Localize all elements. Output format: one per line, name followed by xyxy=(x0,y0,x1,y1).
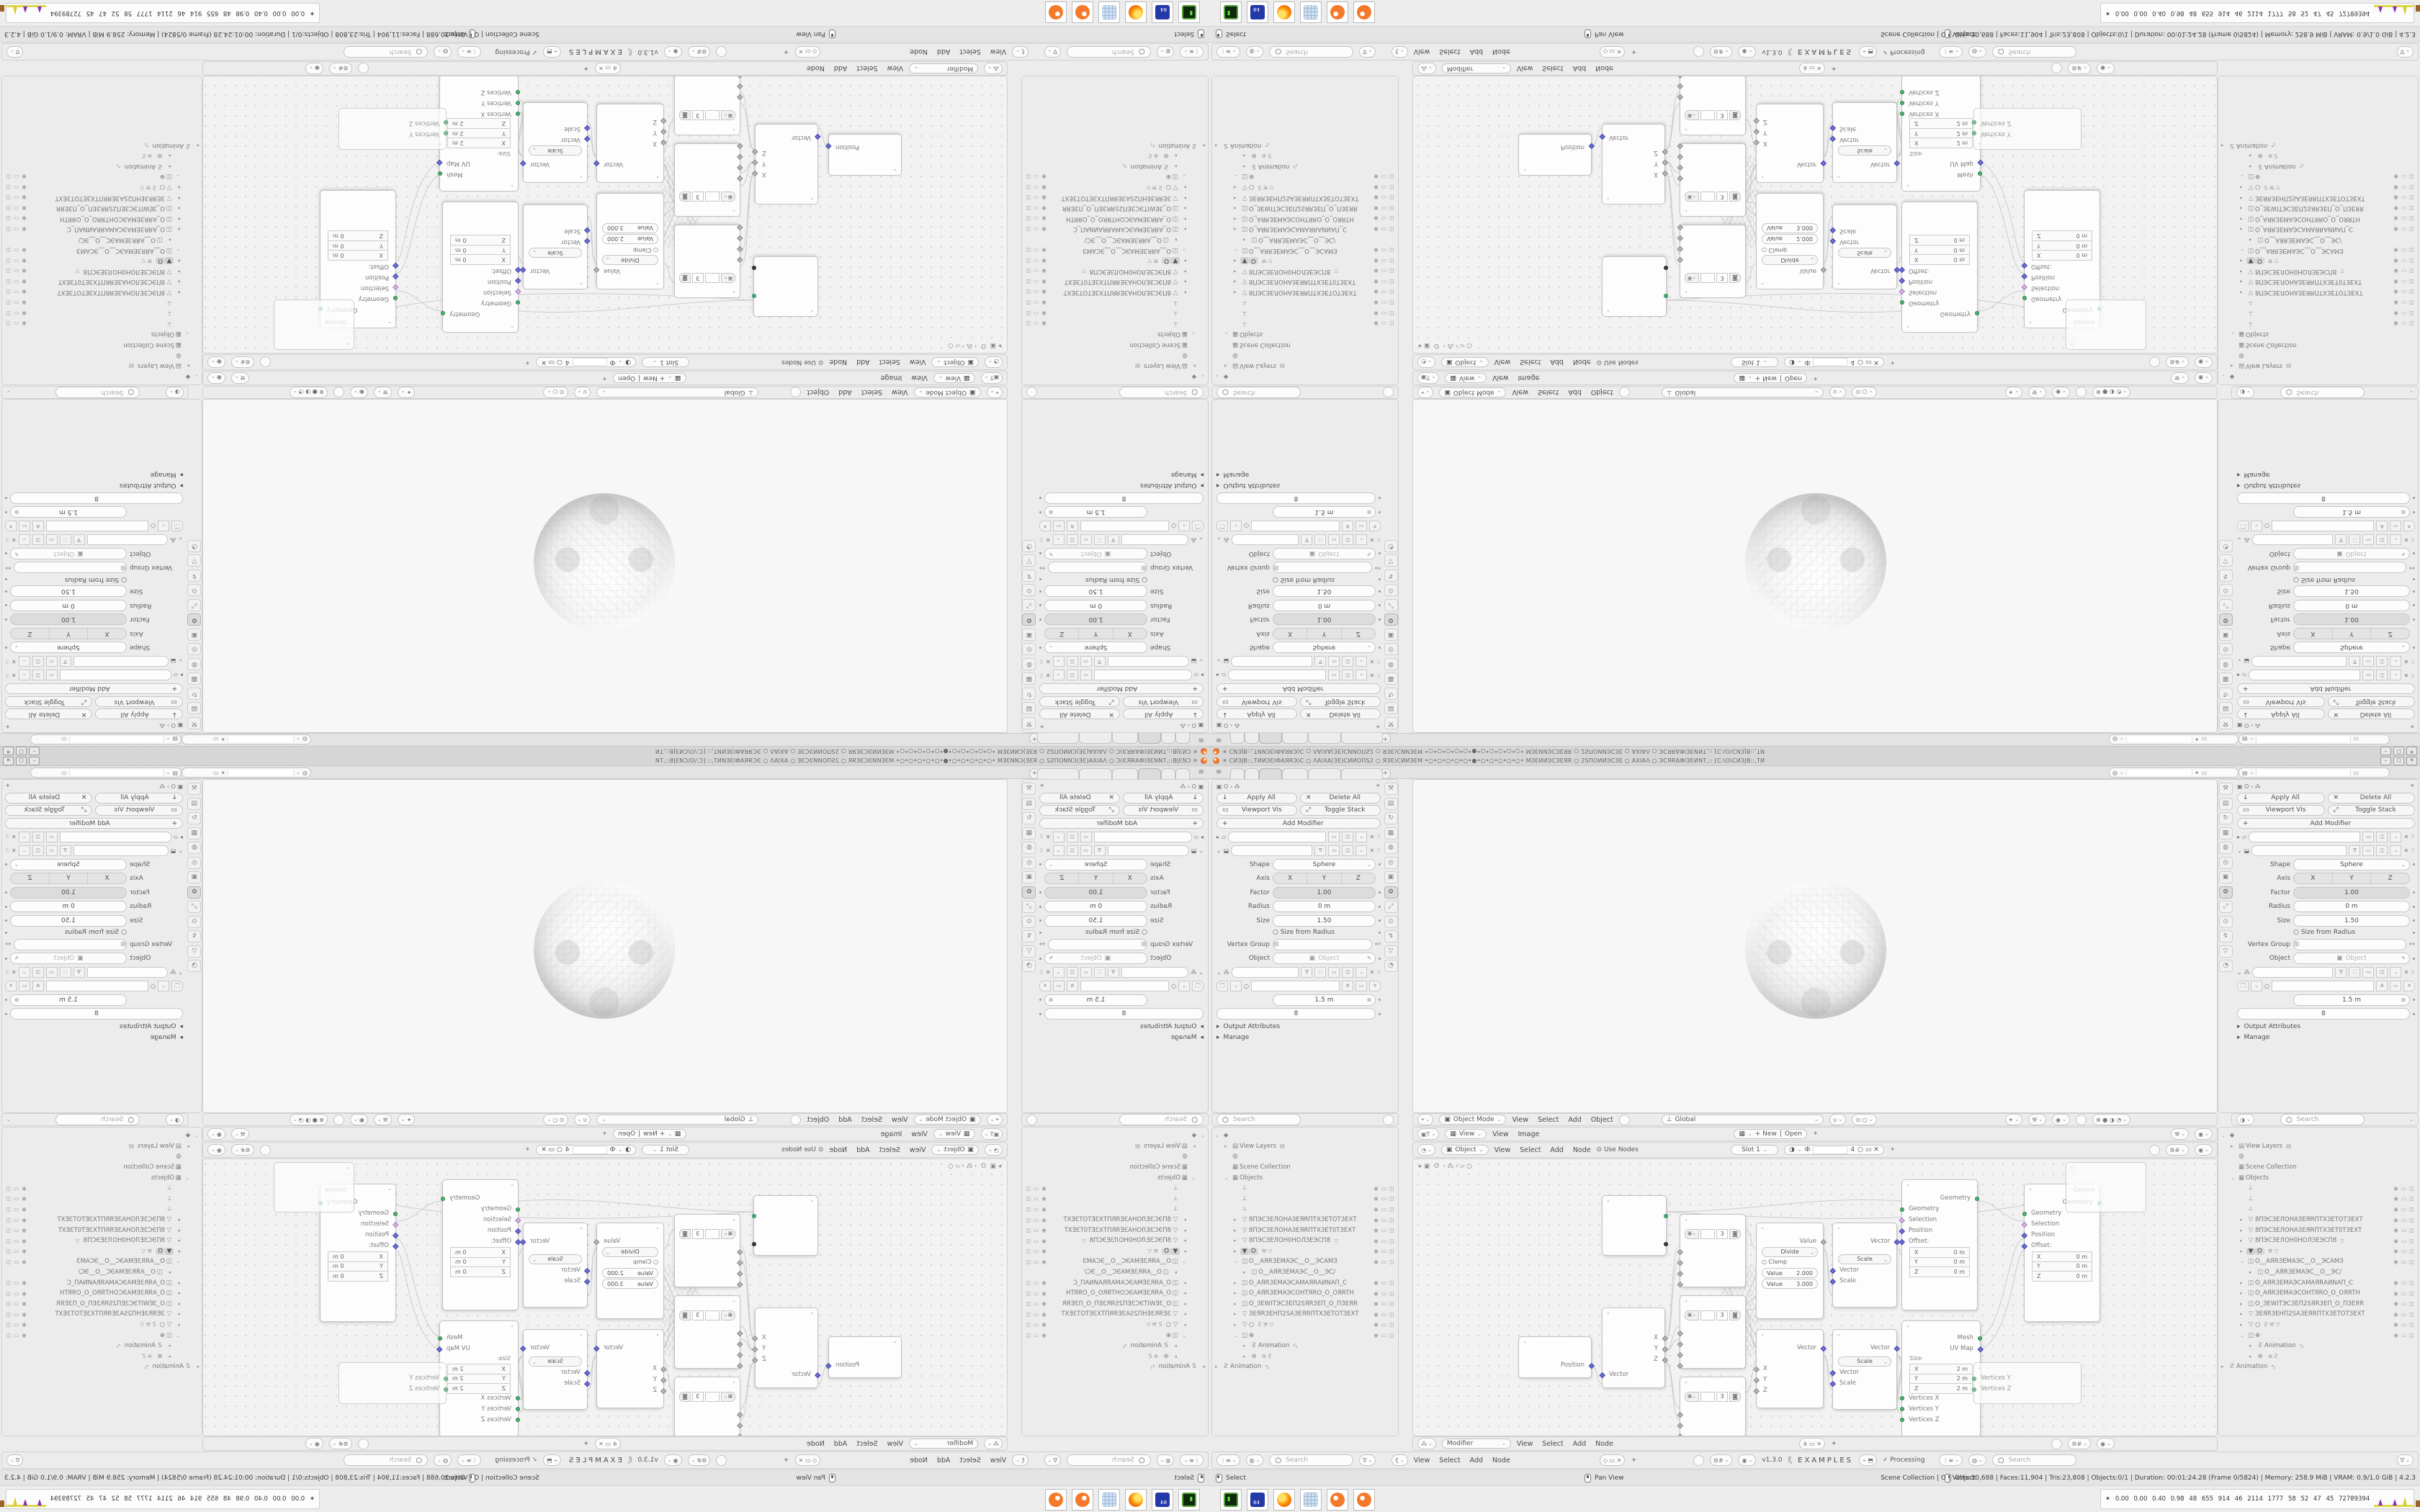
node-enum-dropdown[interactable]: Divide⌄ xyxy=(1762,1247,1818,1257)
expander-icon[interactable]: ▸ xyxy=(174,1322,180,1328)
expander-icon[interactable]: ▸ xyxy=(174,195,180,201)
expander-icon[interactable]: ▸ xyxy=(1189,363,1196,369)
properties-tab-0-icon[interactable]: ⚒ xyxy=(188,717,202,729)
object-field[interactable]: ▣Object✎ xyxy=(2293,548,2410,559)
disable-viewport-icon[interactable]: ▭ xyxy=(1381,1217,1386,1223)
node-group-datablock[interactable]: 🗔⌄○⋔▭✕ xyxy=(2237,981,2415,991)
pin-icon[interactable]: ✦ xyxy=(525,359,531,366)
axis-x-button[interactable]: X xyxy=(1113,873,1147,883)
disable-render-icon[interactable]: ◫ xyxy=(6,174,11,180)
hide-viewport-icon[interactable]: ◉ xyxy=(1373,1195,1379,1202)
snapping-button[interactable]: ⚙#⌄ xyxy=(2068,1438,2091,1449)
blender-app-button[interactable] xyxy=(1045,1,1067,23)
expander-icon[interactable]: ⌄ xyxy=(174,248,180,253)
object-field[interactable]: ▣Object✎ xyxy=(1273,548,1376,559)
menu-select[interactable]: Select xyxy=(861,1116,882,1124)
apply-all-button[interactable]: ↓ Apply All xyxy=(1123,793,1204,804)
expander-icon[interactable]: ▸ xyxy=(1180,1311,1186,1317)
hide-viewport-icon[interactable]: ◉ xyxy=(1373,1248,1379,1254)
node-vector-component-field[interactable]: X0 m xyxy=(328,251,388,261)
viewport-vis-button[interactable]: ▭ Viewport Vis xyxy=(1216,805,1297,816)
disable-render-icon[interactable]: ◫ xyxy=(2409,215,2414,222)
outliner-row[interactable]: ▸⊕⊕ Ƨ xyxy=(2221,1351,2416,1362)
outliner-row[interactable]: ⌄◆ xyxy=(1215,1130,1397,1141)
menu-add[interactable]: Add xyxy=(1568,389,1581,397)
overlays-button[interactable]: ◉⌄ xyxy=(1738,46,1756,58)
shading-options-button[interactable]: ◉⌄ xyxy=(350,1114,368,1125)
examples-editor-type-button[interactable]: ξ⌄ xyxy=(1391,1454,1407,1466)
disable-render-icon[interactable]: ◫ xyxy=(1389,258,1394,264)
node-separate-xyz[interactable]: ⌄XYZVector xyxy=(1602,124,1665,204)
node-index-switch-c[interactable]: ⌄▣⌄3◙ xyxy=(674,1377,740,1436)
maximize-button[interactable]: ▢ xyxy=(16,757,27,765)
hide-viewport-icon[interactable]: ◉ xyxy=(1041,226,1047,233)
axis-z-button[interactable]: Z xyxy=(2371,873,2409,883)
xray-toggle[interactable] xyxy=(333,387,344,398)
disable-viewport-icon[interactable]: ▭ xyxy=(1034,1238,1039,1244)
disable-render-icon[interactable]: ◫ xyxy=(1389,268,1394,274)
disable-viewport-icon[interactable]: ▭ xyxy=(14,205,19,212)
node-vector-math-scale-b[interactable]: ⌄VectorScale⌄VectorScale xyxy=(523,102,588,183)
nodetree-datablock[interactable]: ⌁ ⬒ xyxy=(543,1454,561,1466)
collapse-icon[interactable]: ⌄ xyxy=(1606,309,1610,315)
datablock-icon[interactable]: ▣⌄ xyxy=(1685,1310,1699,1320)
node-set-position-a[interactable]: ⌄GeometryGeometrySelectionPositionOffset… xyxy=(442,202,519,333)
outliner-row[interactable]: ▸▽8ПЭСЗЕЛОНАЗЕЯRПТХЗЕТ0ТЗЕХТ◉▭◫ xyxy=(1215,276,1397,287)
node-editor-type-button[interactable]: ◔⌄ xyxy=(1417,1144,1435,1156)
node-index-switch-c[interactable]: ⌄▣⌄3◙ xyxy=(674,76,740,135)
disable-viewport-icon[interactable]: ▭ xyxy=(1034,205,1039,212)
node-separate-xyz[interactable]: ⌄XYZVector xyxy=(1602,1308,1665,1388)
output-attributes-panel[interactable]: ▸Output Attributes xyxy=(2237,482,2415,489)
hide-viewport-icon[interactable]: ◉ xyxy=(22,320,27,327)
object-field[interactable]: ▣Object✎ xyxy=(2293,953,2410,964)
expander-icon[interactable]: ▸ xyxy=(192,143,199,148)
object-field[interactable]: ▣Object✎ xyxy=(1044,548,1147,559)
disable-render-icon[interactable]: ◫ xyxy=(6,279,11,285)
snap-toggle[interactable] xyxy=(716,1455,727,1466)
viewport-3d[interactable] xyxy=(1412,779,2218,1113)
expander-icon[interactable]: ▸ xyxy=(1234,1290,1240,1296)
properties-tab-7-icon[interactable]: ⚙ xyxy=(1384,614,1398,626)
properties-tab-11-icon[interactable]: ▽ xyxy=(1023,555,1036,567)
node-editor-type-button[interactable]: ◔⌄ xyxy=(985,1144,1003,1156)
disable-viewport-icon[interactable]: ▭ xyxy=(2401,1195,2406,1202)
disable-render-icon[interactable]: ◫ xyxy=(2409,300,2414,306)
expander-icon[interactable]: ▸ xyxy=(174,1228,180,1233)
node-id-widget[interactable]: ▣⌄3◙ xyxy=(1685,1229,1741,1238)
node-vector-component-field[interactable]: Z2 m xyxy=(447,119,511,130)
object-field[interactable]: ▣Object✎ xyxy=(1273,953,1376,964)
hide-viewport-icon[interactable]: ◉ xyxy=(1041,300,1047,306)
firefox-app-button[interactable] xyxy=(1125,1,1147,23)
disable-render-icon[interactable]: ◫ xyxy=(2409,247,2414,253)
geonodes-count-field[interactable]: 8 xyxy=(2237,1008,2410,1020)
disable-render-icon[interactable]: ◫ xyxy=(2409,205,2414,212)
scene-selector[interactable]: ◍⌄✦▭ xyxy=(2109,768,2238,778)
outliner-row[interactable]: ◍ xyxy=(1023,1151,1205,1162)
properties-tab-6-icon[interactable]: ▣ xyxy=(1023,871,1036,883)
menu-add[interactable]: Add xyxy=(1550,359,1563,366)
shield-icon[interactable]: ◙ xyxy=(679,1229,691,1239)
outliner-row[interactable]: ▸◫O__AЯRЗЕМАЭС__O__ЭС/ xyxy=(1023,235,1205,246)
datablock-icon[interactable]: ▣⌄ xyxy=(1685,192,1699,202)
disable-viewport-icon[interactable]: ▭ xyxy=(1034,194,1039,201)
hide-viewport-icon[interactable]: ◉ xyxy=(2393,1321,2398,1328)
hide-viewport-icon[interactable]: ◉ xyxy=(2393,1279,2398,1286)
hide-viewport-icon[interactable]: ◉ xyxy=(22,184,27,191)
node-editor-type-button[interactable]: ◔⌄ xyxy=(985,356,1003,368)
collapse-icon[interactable]: ⌄ xyxy=(810,309,814,315)
geonodes-size-field[interactable]: 1.5 m⊞ xyxy=(1044,507,1147,518)
shape-dropdown[interactable]: Sphere⌄ xyxy=(10,859,127,870)
disable-viewport-icon[interactable]: ▭ xyxy=(2401,1279,2406,1286)
workspace-tab[interactable] xyxy=(1308,768,1341,779)
outliner-row[interactable]: ▸▼O⚒ ▽◉▭◫ xyxy=(2221,1246,2416,1257)
hide-viewport-icon[interactable]: ◉ xyxy=(1041,310,1047,317)
node-index-switch-a[interactable]: ⌄▣⌄3◙ xyxy=(674,1214,740,1287)
node-socket[interactable] xyxy=(393,1212,398,1216)
node-blank-node[interactable]: ⌄ xyxy=(2066,1162,2146,1212)
xray-toggle[interactable] xyxy=(333,1115,344,1125)
geonodes-size-field[interactable]: 1.5 m⊞ xyxy=(2293,507,2410,518)
outliner-row[interactable]: ▸◫O_AЯRЗЕМАЭСOHTЯRO_O_OЯRTH◉▭◫ xyxy=(1023,214,1205,225)
apply-all-button[interactable]: ↓ Apply All xyxy=(1123,709,1204,720)
disable-viewport-icon[interactable]: ▭ xyxy=(1381,1321,1386,1328)
hide-viewport-icon[interactable]: ◉ xyxy=(22,1279,27,1286)
outliner-row[interactable]: ▸▽○Ƨ ⚒ ▽◉▭◫ xyxy=(1215,1320,1397,1331)
disable-render-icon[interactable]: ◫ xyxy=(1389,1206,1394,1212)
disable-render-icon[interactable]: ◫ xyxy=(1026,1195,1031,1202)
disable-viewport-icon[interactable]: ▭ xyxy=(2401,268,2406,274)
hide-viewport-icon[interactable]: ◉ xyxy=(1373,1227,1379,1233)
collapse-icon[interactable]: ⌄ xyxy=(1760,1331,1765,1337)
node-cube[interactable]: ⌄MeshUV MapSize:X2 mY2 mZ2 mVertices XVe… xyxy=(1901,76,1981,192)
outliner-row[interactable]: ▸▽○Ƨ ⚒ ▽◉▭◫ xyxy=(4,1320,199,1331)
outliner-display-mode[interactable]: ⋮≡⌄ xyxy=(1180,1454,1204,1466)
outliner-row[interactable]: ▦Scene Collection xyxy=(1215,340,1397,351)
disable-render-icon[interactable]: ◫ xyxy=(1389,205,1394,212)
close-button[interactable]: ✕ xyxy=(3,747,14,756)
disable-viewport-icon[interactable]: ▭ xyxy=(1381,1227,1386,1233)
hide-viewport-icon[interactable]: ◉ xyxy=(1041,184,1047,191)
expander-icon[interactable]: ▸ xyxy=(174,1290,180,1296)
collapse-icon[interactable]: ⌄ xyxy=(1837,175,1841,181)
expander-icon[interactable]: ▸ xyxy=(1180,1322,1186,1328)
hide-viewport-icon[interactable]: ◉ xyxy=(1041,247,1047,253)
node-group-datablock[interactable]: 🗔⌄○⋔▭✕ xyxy=(1216,981,1381,991)
disable-viewport-icon[interactable]: ▭ xyxy=(2401,258,2406,264)
disable-viewport-icon[interactable]: ▭ xyxy=(14,184,19,191)
node-vector-component-field[interactable]: X0 m xyxy=(1909,1247,1970,1258)
expander-icon[interactable]: ⌄ xyxy=(192,1133,199,1138)
axis-y-button[interactable]: Y xyxy=(2333,629,2372,639)
snap-toggle[interactable] xyxy=(1693,47,1704,58)
outliner-filter-button[interactable]: ◍⌄ xyxy=(1157,46,1175,58)
name-field[interactable] xyxy=(1700,111,1715,121)
outliner-row[interactable]: ⊥◉▭◫ xyxy=(1023,318,1205,329)
pin-icon[interactable]: ✦ xyxy=(2409,722,2415,729)
outliner-row[interactable]: ▸▼O⚒ ▽◉▭◫ xyxy=(1023,1246,1205,1257)
new-image-button[interactable]: + New xyxy=(1755,1130,1777,1138)
node-mode-dropdown[interactable]: ▣ Object⌄ xyxy=(931,357,979,367)
hide-viewport-icon[interactable]: ◉ xyxy=(2393,215,2398,222)
modifier-slot[interactable]: ▸▱▭◫⌄✕⠿ xyxy=(1216,670,1381,680)
node-enum-dropdown[interactable]: Scale⌄ xyxy=(1838,1254,1891,1264)
node-vertices-ghost[interactable]: ⌄Vertices YVertices Z xyxy=(339,1362,447,1404)
node-group-datablock[interactable]: 🗔⌄○⋔▭✕ xyxy=(2237,521,2415,531)
properties-tab-7-icon[interactable]: ⚙ xyxy=(2219,614,2233,626)
pin-icon[interactable]: ✦ xyxy=(1831,1440,1837,1448)
geometry-node-editor[interactable]: ▸ ▣ O › ⁂ › ▱ ○ xyxy=(202,76,1008,354)
disable-viewport-icon[interactable]: ▭ xyxy=(1381,1279,1386,1286)
menu-view[interactable]: View xyxy=(1512,1116,1528,1124)
disable-viewport-icon[interactable]: ▭ xyxy=(1381,1238,1386,1244)
image-editor-type-button[interactable]: ▣T⌄ xyxy=(981,372,1003,384)
properties-tab-9-icon[interactable]: ⊙ xyxy=(188,916,202,928)
outliner-row[interactable]: ⊥◉▭◫ xyxy=(1023,1194,1205,1205)
outliner-row[interactable]: ▦Scene Collection xyxy=(1023,340,1205,351)
outliner-row[interactable]: ⊥◉▭◫ xyxy=(4,308,199,319)
node-math-divide[interactable]: ⌄ValueDivide⌄○ ClampValue2.000Value3.000 xyxy=(1756,1223,1824,1319)
delete-all-button[interactable]: ✕ Delete All xyxy=(1300,709,1381,720)
collapse-icon[interactable]: ⌄ xyxy=(1906,1323,1910,1328)
properties-tab-0-icon[interactable]: ⚒ xyxy=(2219,717,2233,729)
manage-panel[interactable]: ▸Manage xyxy=(2237,471,2415,478)
disable-viewport-icon[interactable]: ▭ xyxy=(14,1238,19,1244)
scene-selector[interactable]: ◍⌄✦▭ xyxy=(181,768,311,778)
hide-viewport-icon[interactable]: ◉ xyxy=(1041,268,1047,274)
disable-viewport-icon[interactable]: ▭ xyxy=(14,1321,19,1328)
firefox-app-button[interactable] xyxy=(1125,1489,1147,1511)
node-vector-component-field[interactable]: Y2 m xyxy=(447,1374,511,1385)
properties-tab-6-icon[interactable]: ▣ xyxy=(1384,871,1398,883)
collapse-icon[interactable]: ⌄ xyxy=(2028,1186,2033,1192)
overlays-button[interactable]: ◉⌄ xyxy=(1738,1454,1756,1466)
disable-viewport-icon[interactable]: ▭ xyxy=(2401,184,2406,191)
overlays-button[interactable]: ◉⌄ xyxy=(207,1128,225,1140)
outliner-display-mode[interactable]: ⋮≡⌄ xyxy=(1216,46,1240,58)
disable-render-icon[interactable]: ◫ xyxy=(2409,1227,2414,1233)
close-button[interactable]: ✕ xyxy=(2406,747,2417,756)
node-index-switch-a[interactable]: ⌄▣⌄3◙ xyxy=(1680,225,1746,298)
overlays-button[interactable]: ◉⌄ xyxy=(2097,1438,2115,1449)
collapse-icon[interactable]: ⌄ xyxy=(1760,175,1765,181)
node-position[interactable]: ⌄Position xyxy=(1518,134,1592,176)
size-from-radius-checkbox[interactable]: ○ Size from Radius xyxy=(1273,576,1335,583)
overlays-button[interactable]: ◉⌄ xyxy=(664,1454,682,1466)
expander-icon[interactable]: ▸ xyxy=(2240,226,2246,232)
expander-icon[interactable]: ▸ xyxy=(1180,1301,1186,1307)
menu-view[interactable]: View xyxy=(911,1130,928,1138)
node-cube[interactable]: ⌄MeshUV MapSize:X2 mY2 mZ2 mVertices XVe… xyxy=(439,76,519,192)
outliner-row[interactable]: ▸▽○Ƨ ⚒ ▽◉▭◫ xyxy=(1215,182,1397,193)
node-group-input[interactable]: ⌄ xyxy=(1602,1195,1667,1256)
expander-icon[interactable]: ⌄ xyxy=(1198,1133,1205,1138)
hide-viewport-icon[interactable]: ◉ xyxy=(1041,1279,1047,1286)
expander-icon[interactable]: ▸ xyxy=(1224,1143,1231,1149)
axis-y-button[interactable]: Y xyxy=(1307,873,1341,883)
nodetree-datablock[interactable]: ⌁ ⬒ xyxy=(1859,1454,1877,1466)
collapse-icon[interactable]: ⌄ xyxy=(732,209,736,215)
workspace-tab[interactable] xyxy=(1282,768,1308,779)
collapse-icon[interactable]: ⌄ xyxy=(387,320,392,326)
properties-tab-8-icon[interactable]: ⤢ xyxy=(1023,901,1036,913)
node-vector-component-field[interactable]: X0 m xyxy=(2032,251,2092,261)
disable-render-icon[interactable]: ◫ xyxy=(2409,289,2414,295)
node-vector-component-field[interactable]: X0 m xyxy=(2032,1251,2092,1262)
name-field[interactable] xyxy=(1700,1229,1715,1239)
workspace-tab[interactable] xyxy=(1037,768,1079,779)
outliner-row[interactable]: ⊥◉▭◫ xyxy=(2221,297,2416,308)
mode-dropdown[interactable]: ▣ Object Mode⌄ xyxy=(914,1115,981,1125)
expander-icon[interactable]: ▸ xyxy=(1198,143,1205,148)
pin-icon[interactable]: ✦ xyxy=(783,1457,789,1464)
image-mode-dropdown[interactable]: ▦ View⌄ xyxy=(933,1129,975,1139)
outliner-search[interactable]: ○ xyxy=(1269,46,1353,58)
outliner-row[interactable]: ▸ƧAnimation⁴₂ xyxy=(2221,1341,2416,1351)
outliner-row[interactable]: ⌄▦Objects xyxy=(1023,1172,1205,1183)
node-group-input[interactable]: ⌄ xyxy=(1602,256,1667,317)
expander-icon[interactable]: ▸ xyxy=(2249,1343,2256,1349)
expander-icon[interactable]: ▸ xyxy=(183,1143,189,1149)
modifier-slot-geonodes[interactable]: ⌄⁂∇⛶▭◫⌄✕⠿ xyxy=(5,967,183,978)
disable-render-icon[interactable]: ◫ xyxy=(6,310,11,317)
disable-render-icon[interactable]: ◫ xyxy=(6,1206,11,1212)
expander-icon[interactable]: ▸ xyxy=(1243,1269,1250,1275)
expander-icon[interactable]: ▸ xyxy=(174,226,180,232)
node-vector-component-field[interactable]: Y0 m xyxy=(450,245,511,256)
snap-toggle[interactable] xyxy=(260,357,271,368)
workspace-tab[interactable] xyxy=(1308,733,1341,744)
collapse-icon[interactable]: ⌄ xyxy=(2070,342,2074,348)
node-index-switch-c[interactable]: ⌄▣⌄3◙ xyxy=(1680,76,1746,135)
disable-render-icon[interactable]: ◫ xyxy=(1389,279,1394,285)
node-vector-component-field[interactable]: Y2 m xyxy=(1909,1374,1973,1385)
greeble-sphere-object[interactable] xyxy=(1745,493,1886,631)
disable-viewport-icon[interactable]: ▭ xyxy=(1381,289,1386,295)
viewport-vis-button[interactable]: ▭ Viewport Vis xyxy=(1123,805,1204,816)
axis-x-button[interactable]: X xyxy=(2294,629,2333,639)
disable-viewport-icon[interactable]: ▭ xyxy=(1034,268,1039,274)
collapse-icon[interactable]: ⌄ xyxy=(1906,184,1910,189)
apply-all-button[interactable]: ↓ Apply All xyxy=(96,793,184,804)
outliner-row[interactable]: ⌄◫O__AЯRЗЕМАЭС__O__ЭСАМЗ◉▭◫ xyxy=(1023,245,1205,256)
properties-tab-4-icon[interactable]: ◍ xyxy=(1023,658,1036,670)
node-group-datablock[interactable]: 🗔⌄○⋔▭✕ xyxy=(1039,981,1204,991)
terminal-app-button[interactable] xyxy=(1178,1489,1200,1511)
disable-viewport-icon[interactable]: ▭ xyxy=(2401,1238,2406,1244)
menu-view[interactable]: View xyxy=(1492,374,1509,382)
disable-viewport-icon[interactable]: ▭ xyxy=(14,1279,19,1286)
disable-viewport-icon[interactable]: ▭ xyxy=(2401,1290,2406,1297)
menu-view[interactable]: View xyxy=(1414,48,1430,56)
viewport-shading-group[interactable]: ⊕ ● ◑ ◔⌄ xyxy=(2092,387,2130,398)
collapse-icon[interactable]: ⌄ xyxy=(732,1379,736,1385)
hide-viewport-icon[interactable]: ◉ xyxy=(22,1227,27,1233)
overlays-button[interactable]: ◉⌄ xyxy=(2195,372,2213,384)
hide-viewport-icon[interactable]: ◉ xyxy=(2393,1311,2398,1318)
node-combine-xyz[interactable]: ⌄VectorXYZ xyxy=(1756,104,1824,183)
new-image-button[interactable]: + New xyxy=(643,1130,665,1138)
calculator-app-button[interactable] xyxy=(1300,1,1322,23)
hide-viewport-icon[interactable]: ◉ xyxy=(22,1248,27,1254)
node-group-datablock[interactable]: 🗔⌄○⋔▭✕ xyxy=(1216,521,1381,531)
firefox-app-button[interactable] xyxy=(1273,1489,1295,1511)
properties-tab-0-icon[interactable]: ⚒ xyxy=(2219,783,2233,795)
collapse-icon[interactable]: ⌄ xyxy=(1606,1197,1610,1203)
hide-viewport-icon[interactable]: ◉ xyxy=(1373,1206,1379,1212)
manage-panel[interactable]: ▸Manage xyxy=(1039,471,1204,478)
disable-render-icon[interactable]: ◫ xyxy=(1389,174,1394,180)
viewport-vis-button[interactable]: ▭ Viewport Vis xyxy=(96,697,184,708)
properties-tab-1-icon[interactable]: ▤ xyxy=(1023,798,1036,810)
hide-viewport-icon[interactable]: ◉ xyxy=(22,268,27,274)
vertex-group-field[interactable]: ⊞ xyxy=(2293,939,2406,950)
shield-icon[interactable]: ◙ xyxy=(679,1310,691,1320)
node-vector-component-field[interactable]: Z2 m xyxy=(1909,1383,1973,1394)
outliner-row[interactable]: ▸▽8ПЭСЗЕЛОНАЗЕЯRПТХЗЕТ0ТЗЕХТ◉▭◫ xyxy=(4,1225,199,1236)
manage-panel[interactable]: ▸Manage xyxy=(1039,1034,1204,1041)
expander-icon[interactable]: ⌄ xyxy=(174,1259,180,1264)
filter-icon[interactable]: ∇⌄ xyxy=(1044,46,1061,58)
menu-view[interactable]: View xyxy=(1494,359,1511,366)
modifier-slot[interactable]: ▸▱▭◫⌄✕⠿ xyxy=(5,670,183,680)
disable-viewport-icon[interactable]: ▭ xyxy=(1034,215,1039,222)
manage-panel[interactable]: ▸Manage xyxy=(5,471,183,478)
transform-orientation-dropdown[interactable]: ⊥ Global⌄ xyxy=(596,387,758,397)
disable-viewport-icon[interactable]: ▭ xyxy=(1381,215,1386,222)
radius-field[interactable]: 0 m xyxy=(10,901,127,912)
snap-toggle[interactable] xyxy=(358,63,369,74)
use-nodes-checkbox[interactable]: ⊙ Use Nodes xyxy=(781,1146,823,1153)
disable-viewport-icon[interactable]: ▭ xyxy=(1381,1311,1386,1318)
radius-field[interactable]: 0 m xyxy=(10,600,127,611)
properties-tab-12-icon[interactable]: ◔ xyxy=(2219,960,2233,972)
node-vector-component-field[interactable]: X0 m xyxy=(328,1251,388,1262)
outliner-row[interactable]: ▦Scene Collection xyxy=(1215,1162,1397,1173)
properties-tab-8-icon[interactable]: ⤢ xyxy=(188,901,202,913)
disable-viewport-icon[interactable]: ▭ xyxy=(14,1332,19,1338)
add-modifier-button[interactable]: + Add Modifier xyxy=(5,683,183,694)
expander-icon[interactable]: ⌄ xyxy=(192,374,199,379)
disable-render-icon[interactable]: ◫ xyxy=(1026,1238,1031,1244)
hide-viewport-icon[interactable]: ◉ xyxy=(1041,1311,1047,1318)
outliner-row[interactable]: ▸▽○Ƨ ⚒ ▽◉▭◫ xyxy=(4,182,199,193)
outliner-row[interactable]: ◍ xyxy=(4,350,199,361)
add-modifier-button[interactable]: + Add Modifier xyxy=(2237,818,2415,829)
outliner-row[interactable]: ⌄▦Objects xyxy=(1215,329,1397,340)
snap-toggle[interactable] xyxy=(2149,357,2160,368)
disable-viewport-icon[interactable]: ▭ xyxy=(2401,1206,2406,1212)
outliner-row[interactable]: ▸◫O_ЗЕWITЭСЗЕП2SЯRЗЕП_О_ПЗЕЯR◉▭◫ xyxy=(4,1299,199,1310)
transform-orientation-dropdown[interactable]: ⊥ Global⌄ xyxy=(1662,387,1824,397)
expander-icon[interactable]: ▸ xyxy=(174,184,180,190)
toggle-stack-button[interactable]: ⤢ Toggle Stack xyxy=(1039,697,1120,708)
display-filter-button[interactable]: ◑⌄ xyxy=(166,1114,184,1125)
disable-render-icon[interactable]: ◫ xyxy=(1026,320,1031,327)
node-enum-dropdown[interactable]: Scale⌄ xyxy=(529,248,582,258)
properties-tab-12-icon[interactable]: ◔ xyxy=(1023,540,1036,552)
examples-editor-type-button[interactable]: ξ⌄ xyxy=(1012,1454,1028,1466)
workspace-tab[interactable] xyxy=(1341,768,1383,779)
disable-render-icon[interactable]: ◫ xyxy=(2409,1259,2414,1265)
collapse-icon[interactable]: ⌄ xyxy=(732,1216,736,1222)
hide-viewport-icon[interactable]: ◉ xyxy=(1373,205,1379,212)
collapse-icon[interactable]: ⌄ xyxy=(1760,1225,1765,1230)
properties-tab-3-icon[interactable]: ▦ xyxy=(2219,673,2233,685)
collapse-icon[interactable]: ⌄ xyxy=(1760,282,1765,287)
